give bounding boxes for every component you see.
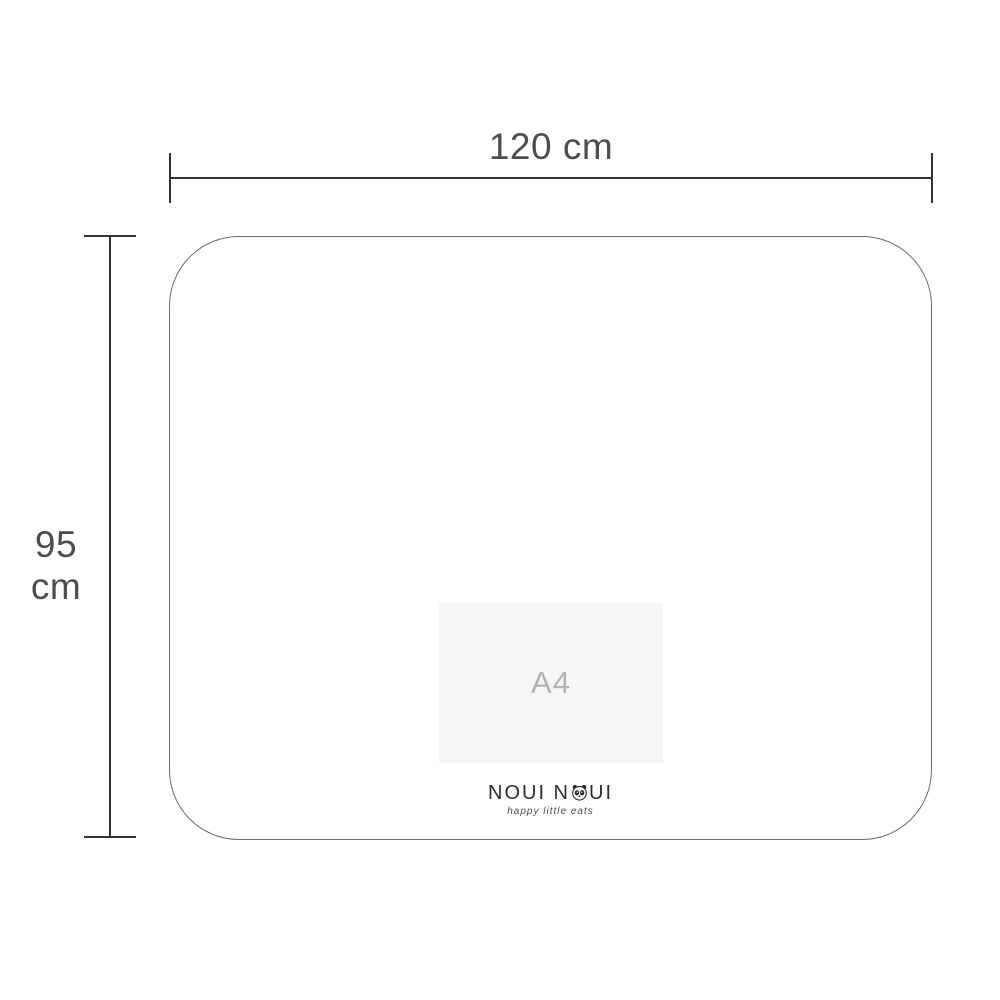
height-dimension-label: 95 cm	[6, 524, 106, 608]
height-dimension-line	[109, 236, 111, 838]
product-dimension-diagram: 120 cm 95 cm A4 NOUI N UI happy	[0, 0, 1000, 1000]
width-dimension-endcap-right	[931, 153, 933, 203]
brand-name-left: NOUI N	[488, 782, 570, 804]
height-dimension-endcap-bottom	[84, 836, 136, 838]
brand-tagline: happy little eats	[169, 807, 932, 817]
height-dimension-endcap-top	[84, 235, 136, 237]
a4-label: A4	[531, 665, 571, 701]
panda-face-icon	[571, 784, 588, 801]
width-dimension-line	[170, 177, 932, 179]
width-dimension-endcap-left	[169, 153, 171, 203]
width-dimension-label: 120 cm	[170, 126, 932, 168]
brand-name: NOUI N UI	[169, 783, 932, 803]
brand-name-right: UI	[589, 782, 613, 804]
brand-logo: NOUI N UI happy little eats	[169, 783, 932, 817]
a4-reference-box: A4	[439, 603, 663, 763]
